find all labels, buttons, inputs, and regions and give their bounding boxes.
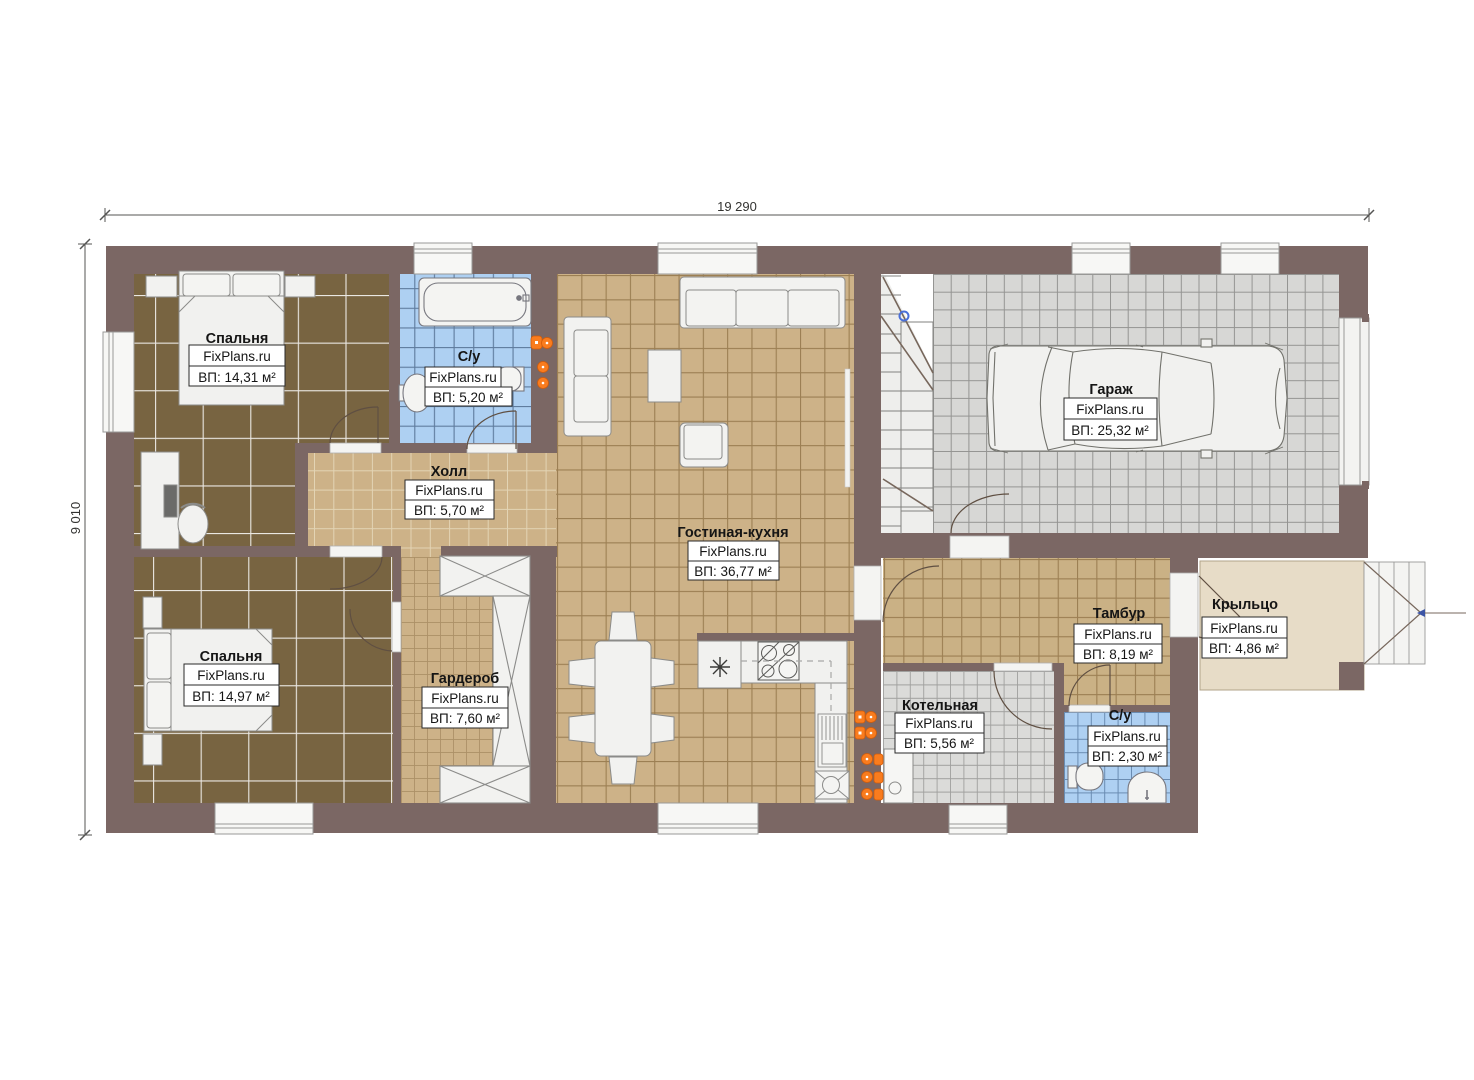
svg-text:ВП: 4,86 м²: ВП: 4,86 м² [1209, 641, 1280, 656]
svg-text:Котельная: Котельная [902, 698, 978, 714]
svg-text:9 010: 9 010 [68, 502, 83, 535]
svg-text:FixPlans.ru: FixPlans.ru [699, 544, 767, 559]
svg-text:FixPlans.ru: FixPlans.ru [905, 716, 973, 731]
svg-text:Тамбур: Тамбур [1093, 606, 1146, 622]
svg-text:Холл: Холл [431, 464, 467, 480]
svg-text:Гараж: Гараж [1089, 382, 1133, 398]
svg-text:FixPlans.ru: FixPlans.ru [1076, 402, 1144, 417]
svg-text:FixPlans.ru: FixPlans.ru [1093, 729, 1161, 744]
svg-text:С/у: С/у [458, 349, 481, 365]
svg-text:FixPlans.ru: FixPlans.ru [1210, 621, 1278, 636]
svg-text:ВП: 8,19 м²: ВП: 8,19 м² [1083, 647, 1154, 662]
svg-text:ВП: 25,32 м²: ВП: 25,32 м² [1071, 423, 1149, 438]
svg-text:ВП: 2,30 м²: ВП: 2,30 м² [1092, 749, 1163, 764]
svg-text:ВП: 7,60 м²: ВП: 7,60 м² [430, 711, 501, 726]
svg-text:ВП: 14,31 м²: ВП: 14,31 м² [198, 370, 276, 385]
svg-text:FixPlans.ru: FixPlans.ru [203, 349, 271, 364]
svg-text:ВП: 5,56 м²: ВП: 5,56 м² [904, 736, 975, 751]
svg-text:ВП: 36,77 м²: ВП: 36,77 м² [694, 564, 772, 579]
svg-text:19 290: 19 290 [717, 199, 757, 214]
svg-text:FixPlans.ru: FixPlans.ru [197, 668, 265, 683]
svg-text:ВП: 5,20 м²: ВП: 5,20 м² [433, 390, 504, 405]
svg-text:FixPlans.ru: FixPlans.ru [429, 370, 497, 385]
svg-text:Гардероб: Гардероб [431, 671, 500, 687]
svg-text:ВП: 5,70 м²: ВП: 5,70 м² [414, 503, 485, 518]
svg-text:Крыльцо: Крыльцо [1212, 597, 1278, 613]
svg-text:FixPlans.ru: FixPlans.ru [1084, 627, 1152, 642]
svg-text:FixPlans.ru: FixPlans.ru [431, 691, 499, 706]
svg-text:ВП: 14,97 м²: ВП: 14,97 м² [192, 689, 270, 704]
svg-text:FixPlans.ru: FixPlans.ru [415, 483, 483, 498]
svg-text:С/у: С/у [1109, 708, 1132, 724]
svg-text:Гостиная-кухня: Гостиная-кухня [677, 525, 788, 541]
svg-text:Спальня: Спальня [200, 649, 263, 665]
